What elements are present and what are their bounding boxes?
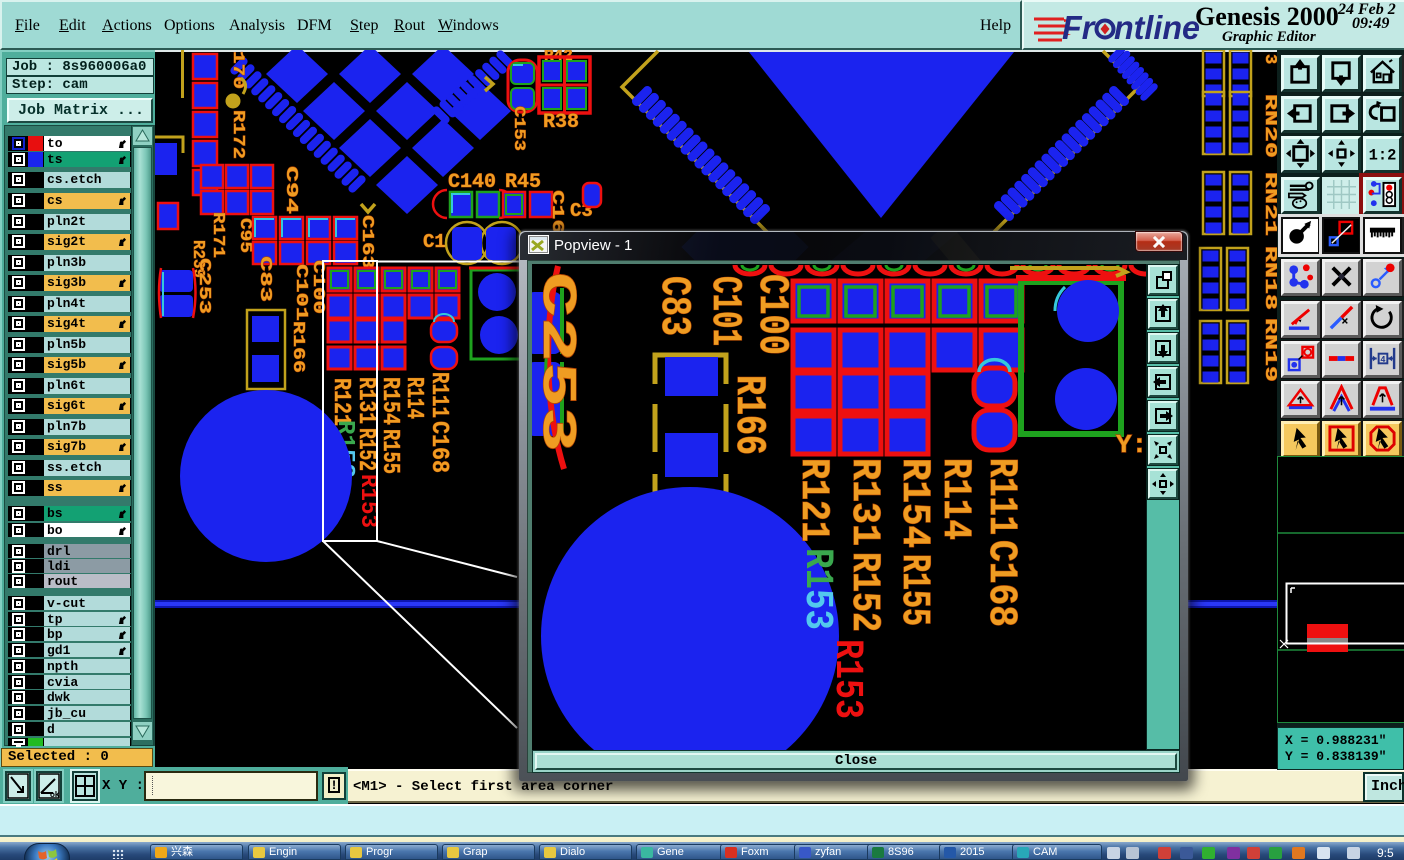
svg-text:R121: R121 (790, 458, 835, 542)
svg-text:R172: R172 (228, 110, 247, 159)
svg-text:C100: C100 (308, 260, 327, 314)
svg-text:C253: C253 (194, 258, 213, 314)
svg-text:C168: C168 (978, 540, 1023, 627)
svg-text:R155: R155 (891, 554, 936, 626)
svg-text:Y:: Y: (1116, 430, 1146, 460)
svg-text:C140: C140 (448, 171, 496, 194)
svg-text:R121: R121 (327, 378, 354, 426)
svg-text:R155: R155 (376, 429, 403, 474)
svg-text:R154: R154 (891, 458, 936, 548)
svg-text:R166: R166 (725, 375, 773, 455)
svg-text:C83: C83 (255, 256, 274, 302)
svg-text:RN20: RN20 (1260, 94, 1277, 158)
svg-text:R131: R131 (841, 458, 886, 546)
svg-text:3: 3 (1260, 54, 1277, 64)
svg-text:R114: R114 (932, 458, 977, 540)
svg-text:4: 4 (1381, 354, 1386, 364)
svg-text:C101: C101 (701, 276, 749, 346)
svg-text:C16: C16 (547, 190, 566, 234)
svg-text:C100: C100 (748, 274, 796, 355)
svg-text:C1: C1 (423, 231, 446, 253)
svg-text:RN18: RN18 (1260, 246, 1277, 310)
svg-text:R111: R111 (978, 458, 1023, 535)
svg-text:RN19: RN19 (1260, 318, 1277, 382)
svg-text:R114: R114 (400, 377, 427, 419)
svg-text:R38: R38 (543, 111, 579, 134)
svg-text:C153: C153 (510, 106, 528, 151)
svg-text:C101: C101 (291, 264, 310, 321)
svg-text:ok: ok (50, 790, 60, 799)
svg-text:R131: R131 (352, 377, 379, 424)
svg-text:R154: R154 (376, 377, 403, 425)
svg-text:R152: R152 (841, 552, 886, 632)
svg-text:RN21: RN21 (1260, 172, 1277, 236)
svg-text:1:2: 1:2 (1369, 146, 1397, 164)
svg-text:R45: R45 (505, 171, 541, 194)
svg-text:Frontline: Frontline (1062, 10, 1200, 44)
svg-text:R153: R153 (794, 548, 839, 630)
svg-text:R166: R166 (288, 321, 307, 373)
svg-text:R171: R171 (208, 212, 227, 258)
svg-text:C94: C94 (281, 166, 300, 214)
svg-text:C253: C253 (532, 272, 583, 452)
svg-text:C168: C168 (425, 421, 452, 473)
svg-text:R153: R153 (824, 639, 869, 719)
svg-text:C95: C95 (235, 218, 254, 253)
svg-text:C83: C83 (650, 276, 698, 336)
svg-text:R111: R111 (425, 372, 452, 418)
